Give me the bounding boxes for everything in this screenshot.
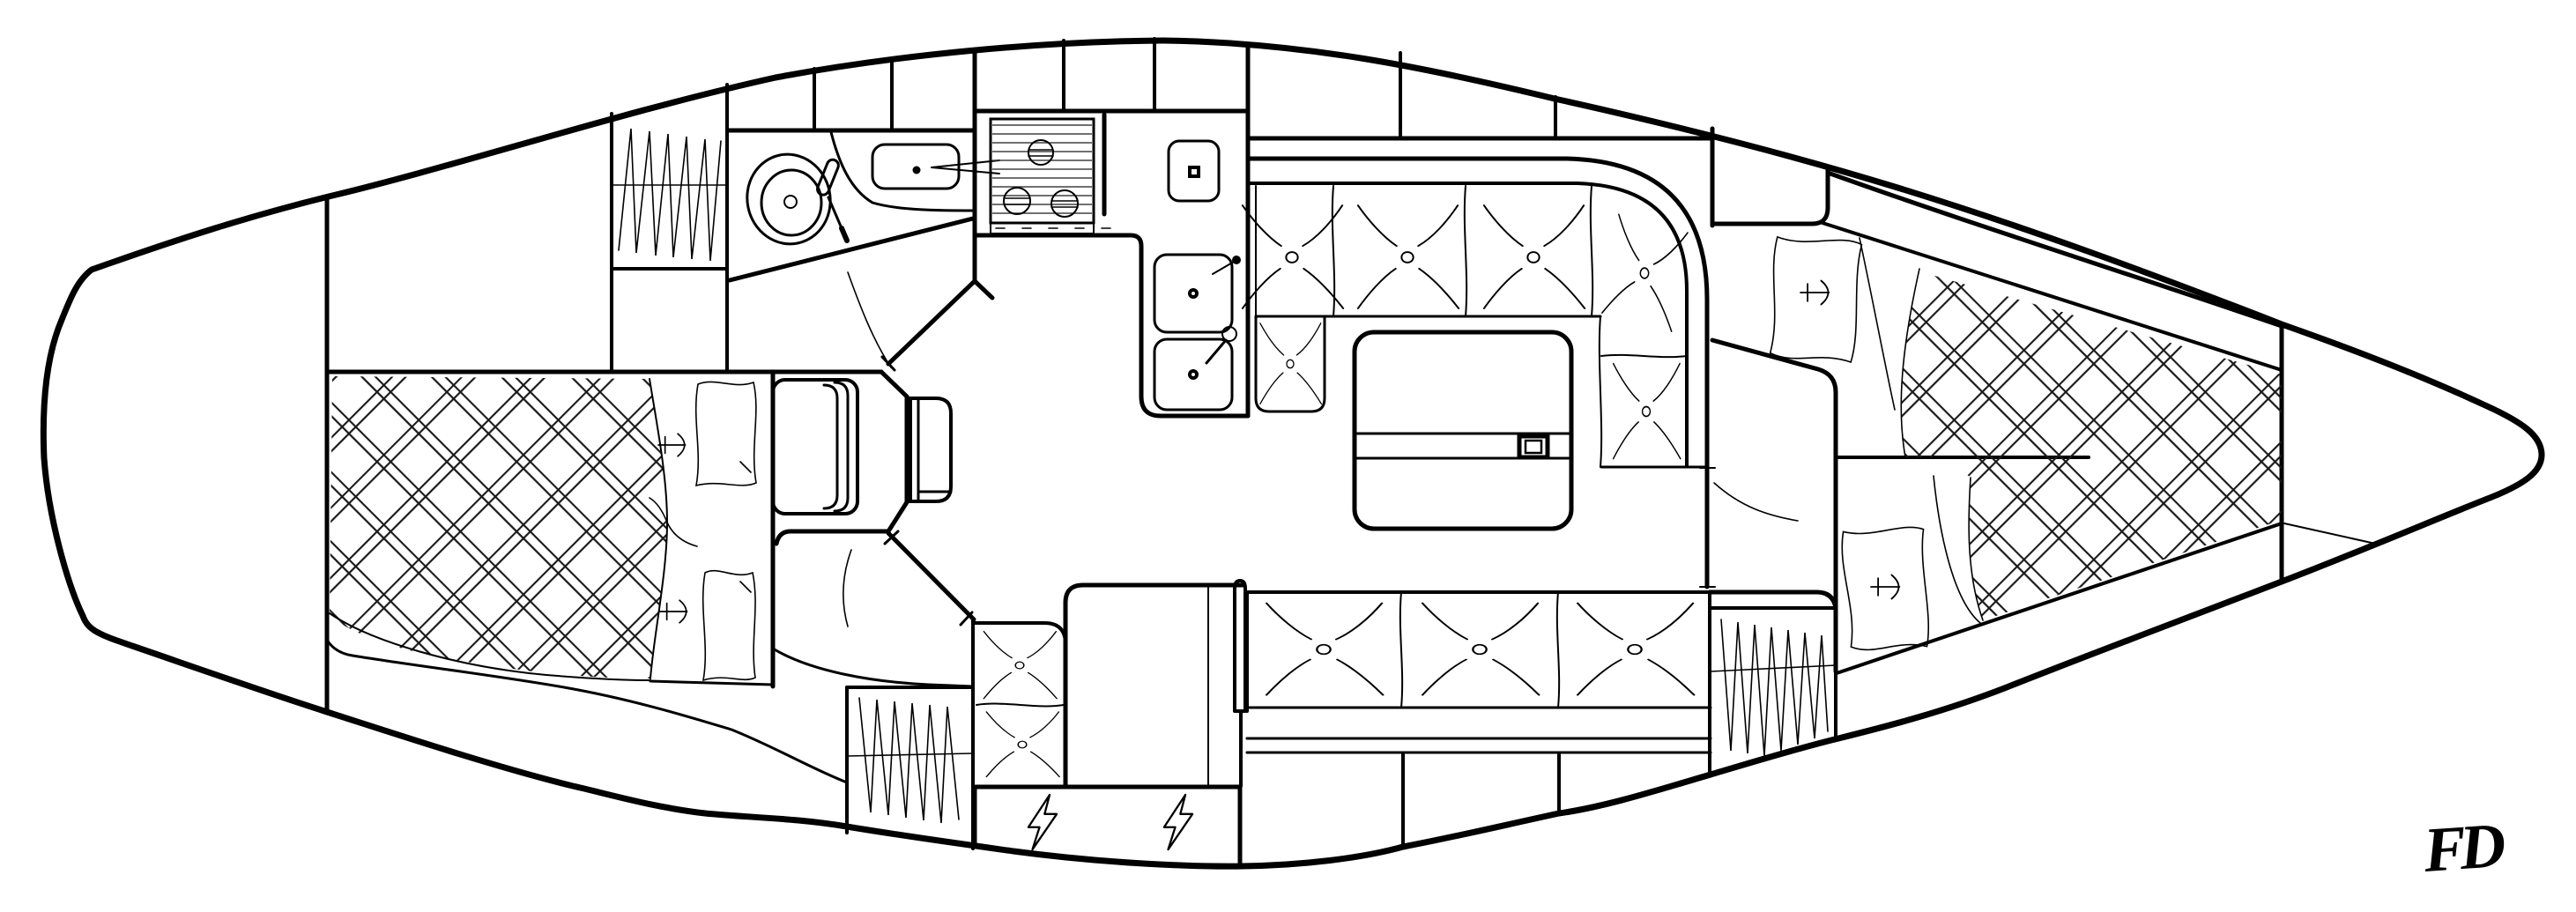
svg-text:FD: FD <box>2421 810 2507 886</box>
